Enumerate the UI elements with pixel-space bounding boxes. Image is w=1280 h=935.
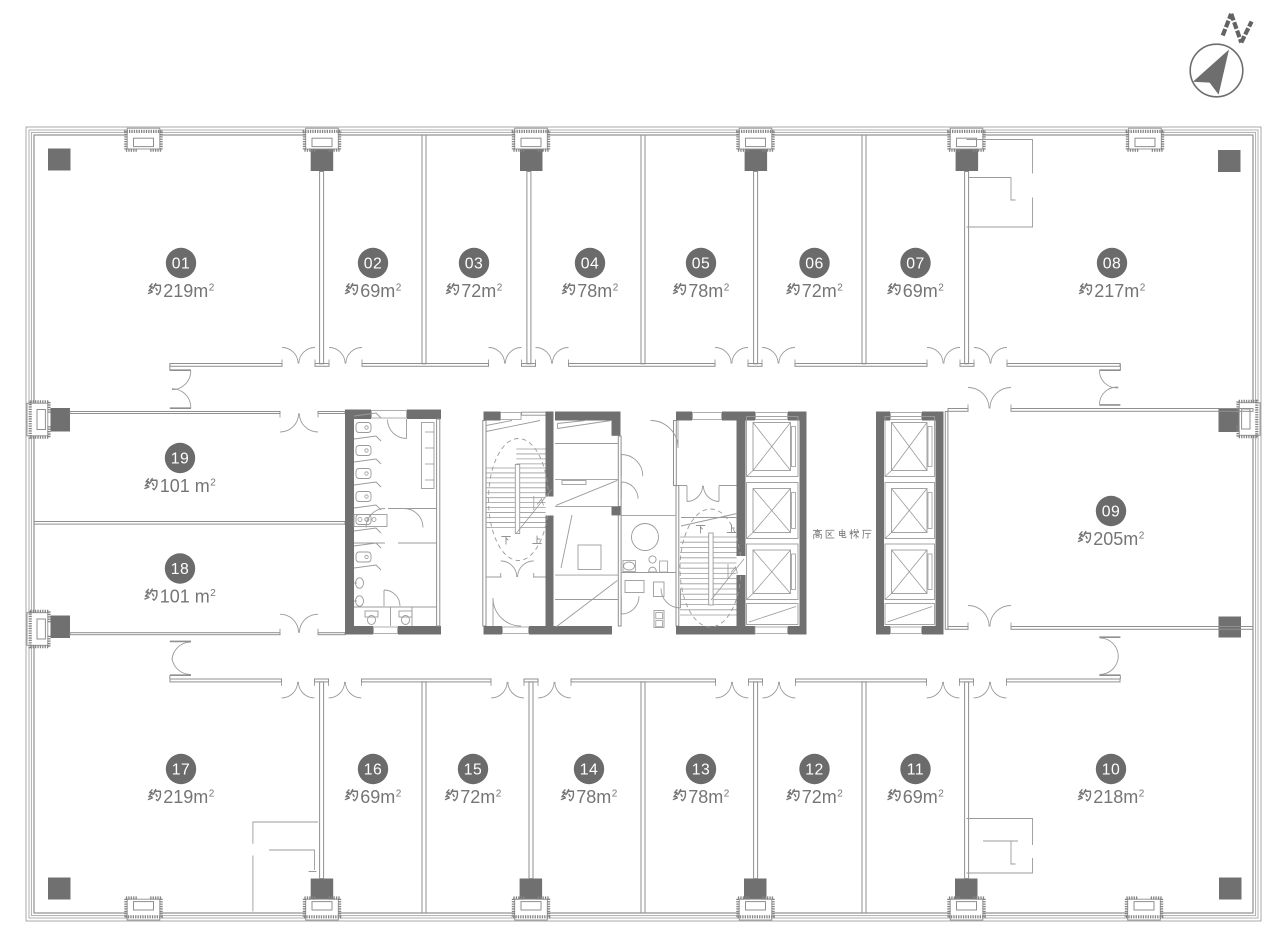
svg-text:72m: 72m (802, 787, 837, 807)
svg-text:2: 2 (210, 478, 216, 489)
svg-text:05: 05 (692, 256, 711, 273)
svg-text:2: 2 (938, 283, 944, 294)
svg-text:2: 2 (724, 789, 730, 800)
svg-text:69m: 69m (903, 281, 938, 301)
svg-text:2: 2 (396, 283, 402, 294)
svg-text:2: 2 (209, 283, 215, 294)
svg-text:69m: 69m (360, 281, 395, 301)
svg-text:72m: 72m (460, 787, 495, 807)
svg-text:19: 19 (171, 451, 190, 468)
svg-text:09: 09 (1102, 504, 1121, 521)
svg-text:69m: 69m (903, 787, 938, 807)
svg-text:78m: 78m (576, 787, 611, 807)
svg-text:2: 2 (837, 789, 843, 800)
svg-text:13: 13 (692, 762, 711, 779)
svg-text:2: 2 (1140, 283, 1146, 294)
svg-text:15: 15 (464, 762, 483, 779)
svg-text:2: 2 (613, 283, 619, 294)
svg-text:2: 2 (497, 283, 503, 294)
svg-text:02: 02 (364, 256, 383, 273)
svg-text:2: 2 (837, 283, 843, 294)
svg-text:78m: 78m (688, 281, 723, 301)
svg-text:2: 2 (209, 789, 215, 800)
svg-text:2: 2 (1139, 531, 1145, 542)
svg-text:101 m: 101 m (160, 587, 210, 607)
svg-text:72m: 72m (802, 281, 837, 301)
svg-text:69m: 69m (360, 787, 395, 807)
svg-text:2: 2 (724, 283, 730, 294)
svg-text:08: 08 (1103, 256, 1122, 273)
svg-text:218m: 218m (1093, 787, 1138, 807)
svg-text:16: 16 (364, 762, 383, 779)
svg-text:2: 2 (210, 588, 216, 599)
svg-text:10: 10 (1102, 762, 1121, 779)
svg-text:07: 07 (906, 256, 925, 273)
svg-text:78m: 78m (688, 787, 723, 807)
svg-text:78m: 78m (577, 281, 612, 301)
svg-text:11: 11 (907, 762, 924, 779)
svg-text:2: 2 (938, 789, 944, 800)
svg-text:18: 18 (171, 561, 190, 578)
svg-text:12: 12 (805, 762, 824, 779)
svg-text:72m: 72m (461, 281, 496, 301)
svg-text:06: 06 (805, 256, 824, 273)
svg-text:205m: 205m (1093, 529, 1138, 549)
svg-text:2: 2 (1139, 789, 1145, 800)
svg-text:01: 01 (172, 256, 191, 273)
svg-text:17: 17 (172, 762, 191, 779)
svg-text:2: 2 (496, 789, 502, 800)
svg-text:219m: 219m (163, 281, 208, 301)
svg-text:219m: 219m (163, 787, 208, 807)
svg-text:03: 03 (465, 256, 484, 273)
svg-text:14: 14 (580, 762, 599, 779)
svg-text:101 m: 101 m (160, 476, 210, 496)
svg-text:04: 04 (581, 256, 600, 273)
svg-text:217m: 217m (1094, 281, 1139, 301)
svg-text:2: 2 (612, 789, 618, 800)
svg-text:2: 2 (396, 789, 402, 800)
